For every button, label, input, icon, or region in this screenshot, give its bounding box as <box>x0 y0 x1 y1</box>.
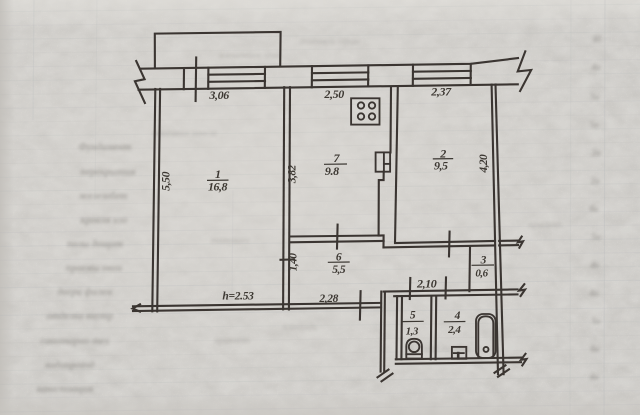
svg-text:4: 4 <box>454 310 461 322</box>
svg-text:крыльцо: крыльцо <box>528 219 562 229</box>
svg-text:двери филен: двери филен <box>58 287 113 298</box>
svg-text:3,82: 3,82 <box>287 164 299 184</box>
svg-text:9.8: 9.8 <box>325 164 339 178</box>
svg-text:оштукат: оштукат <box>211 235 250 245</box>
svg-text:водопровод: водопровод <box>46 360 95 371</box>
svg-text:1,40: 1,40 <box>288 253 300 272</box>
svg-text:2о: 2о <box>591 148 602 158</box>
svg-text:4,20: 4,20 <box>478 154 490 174</box>
svg-text:принято: принято <box>214 335 250 345</box>
svg-text:бо: бо <box>590 204 599 214</box>
svg-text:2,37: 2,37 <box>430 84 452 98</box>
svg-text:бо: бо <box>591 344 600 354</box>
svg-text:7: 7 <box>334 151 341 165</box>
svg-text:площадь: площадь <box>283 322 318 332</box>
svg-text:3,06: 3,06 <box>208 88 229 102</box>
svg-text:1,3: 1,3 <box>406 326 419 338</box>
svg-text:2о: 2о <box>590 176 601 186</box>
svg-text:канализация: канализация <box>37 384 93 395</box>
svg-text:типовой серии: типовой серии <box>300 36 360 46</box>
svg-text:2,4: 2,4 <box>447 324 461 336</box>
svg-text:40: 40 <box>592 34 603 44</box>
svg-text:2,50: 2,50 <box>323 87 344 101</box>
svg-text:5,5: 5,5 <box>332 264 346 276</box>
svg-text:5о: 5о <box>592 232 602 242</box>
svg-text:5о: 5о <box>590 120 600 130</box>
svg-text:элементов здан: элементов здан <box>218 50 281 60</box>
svg-text:6: 6 <box>336 252 342 264</box>
svg-text:4о: 4о <box>590 260 601 270</box>
svg-text:5: 5 <box>410 310 416 322</box>
svg-text:4о: 4о <box>591 62 602 72</box>
svg-text:2,28: 2,28 <box>318 293 338 305</box>
svg-text:2,10: 2,10 <box>416 277 437 291</box>
svg-text:h=2.53: h=2.53 <box>222 291 254 303</box>
svg-text:3: 3 <box>480 255 487 267</box>
svg-text:5о: 5о <box>591 92 601 102</box>
svg-text:описание конст: описание конст <box>153 128 217 138</box>
svg-text:железобет: железобет <box>79 191 128 202</box>
svg-text:Фундамент: Фундамент <box>78 142 131 153</box>
svg-text:0,6: 0,6 <box>475 268 488 280</box>
svg-text:перекрытия: перекрытия <box>81 167 136 178</box>
svg-text:16,8: 16,8 <box>208 180 228 194</box>
svg-text:проемы окон: проемы окон <box>66 263 123 274</box>
svg-text:5о: 5о <box>592 316 602 326</box>
svg-text:отделка внутр: отделка внутр <box>47 311 113 322</box>
svg-text:санитарно-тех: санитарно-тех <box>41 336 110 347</box>
svg-text:5,50: 5,50 <box>159 171 173 191</box>
svg-text:полы дощат: полы дощат <box>67 239 123 250</box>
svg-text:4о: 4о <box>589 288 600 298</box>
svg-text:4о: 4о <box>589 372 600 382</box>
svg-text:кровля изо: кровля изо <box>81 215 128 226</box>
svg-text:9,5: 9,5 <box>434 158 448 172</box>
